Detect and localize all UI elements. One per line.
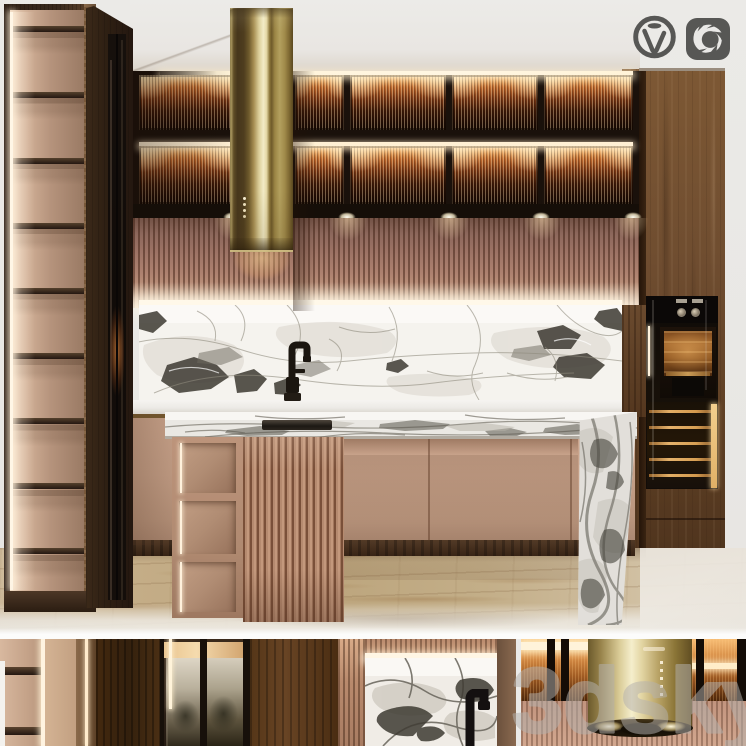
svg-text:3dsky: 3dsky [512, 650, 746, 746]
